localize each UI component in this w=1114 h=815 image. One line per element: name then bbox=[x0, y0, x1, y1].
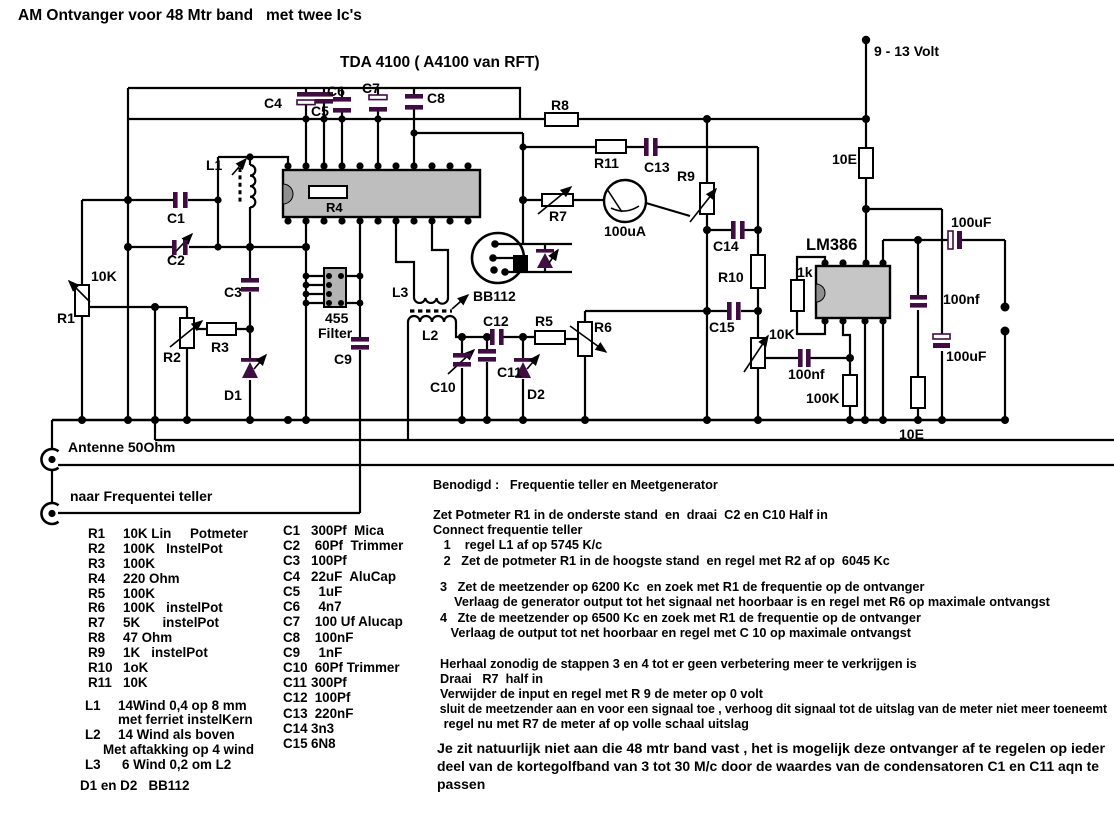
svg-text:C4: C4 bbox=[283, 569, 301, 584]
freq-counter-label: naar Frequentei teller bbox=[70, 488, 213, 504]
diode-d1 bbox=[241, 355, 266, 378]
svg-text:regel nu met R7 de meter af op: regel nu met R7 de meter af op volle sch… bbox=[433, 717, 749, 731]
cap-c6 bbox=[333, 97, 351, 113]
svg-text:10K: 10K bbox=[123, 675, 148, 690]
resistor-1k bbox=[791, 280, 804, 311]
parts-list-resistors: R110K Lin Potmeter R2100K InstelPot R310… bbox=[88, 526, 249, 690]
svg-text:L1: L1 bbox=[85, 698, 101, 713]
svg-text:C10: C10 bbox=[283, 660, 308, 675]
label-c12: C12 bbox=[483, 313, 509, 329]
coil-l3 bbox=[410, 298, 452, 311]
svg-text:met ferriet instelKern: met ferriet instelKern bbox=[118, 712, 253, 727]
svg-text:1 regel L1 af op 5745 K/c: 1 regel L1 af op 5745 K/c bbox=[433, 538, 602, 552]
resistor-r10 bbox=[751, 255, 765, 288]
label-c14: C14 bbox=[713, 238, 739, 254]
svg-text:C2: C2 bbox=[283, 538, 300, 553]
page-title: AM Ontvanger voor 48 Mtr band met twee I… bbox=[18, 7, 362, 24]
svg-text:R7: R7 bbox=[88, 615, 105, 630]
svg-text:100K: 100K bbox=[123, 586, 155, 601]
cap-c3 bbox=[241, 278, 259, 292]
svg-text:L3: L3 bbox=[85, 757, 101, 772]
varicap-bb112-symbol bbox=[472, 233, 558, 283]
label-l3: L3 bbox=[392, 284, 409, 300]
value-10e-bottom: 10E bbox=[899, 426, 924, 442]
svg-text:C11: C11 bbox=[283, 675, 307, 690]
svg-text:C1: C1 bbox=[283, 523, 301, 538]
cap-c10 bbox=[453, 353, 471, 367]
label-r8: R8 bbox=[551, 97, 569, 113]
svg-text:C9: C9 bbox=[283, 645, 300, 660]
ic1-title: TDA 4100 ( A4100 van RFT) bbox=[340, 54, 540, 71]
label-c4: C4 bbox=[264, 95, 282, 111]
svg-text:14Wind 0,4 op 8 mm: 14Wind 0,4 op 8 mm bbox=[118, 698, 247, 713]
svg-text:100Pf: 100Pf bbox=[311, 553, 347, 568]
svg-text:100K InstelPot: 100K InstelPot bbox=[123, 541, 223, 556]
svg-text:Connect frequentie teller: Connect frequentie teller bbox=[433, 523, 583, 537]
svg-text:Met aftakking op 4 wind: Met aftakking op 4 wind bbox=[103, 742, 254, 757]
supply-label: 9 - 13 Volt bbox=[874, 43, 939, 59]
svg-text:Herhaal zonodig de stappen 3 e: Herhaal zonodig de stappen 3 en 4 tot er… bbox=[433, 657, 917, 671]
svg-text:C15: C15 bbox=[283, 736, 308, 751]
svg-text:2 Zet de potmeter R1 in de h: 2 Zet de potmeter R1 in de hoogste stand… bbox=[433, 554, 890, 568]
value-r1: 10K bbox=[91, 268, 117, 284]
label-c1: C1 bbox=[167, 210, 185, 226]
cap-c14 bbox=[731, 221, 745, 239]
label-c7: C7 bbox=[362, 80, 380, 96]
label-r6: R6 bbox=[594, 319, 612, 335]
cap-c9 bbox=[351, 337, 369, 350]
instructions-heading: Benodigd : Frequentie teller en Meetgene… bbox=[433, 478, 718, 492]
svg-text:100 Uf Alucap: 100 Uf Alucap bbox=[311, 614, 403, 629]
svg-text:1uF: 1uF bbox=[311, 584, 342, 599]
value-pot10k: 10K bbox=[769, 326, 795, 342]
value-100k: 100K bbox=[806, 390, 839, 406]
cap-c7 bbox=[369, 95, 387, 112]
svg-text:C6: C6 bbox=[283, 599, 300, 614]
footer-line: passen bbox=[437, 776, 485, 792]
svg-text:100nF: 100nF bbox=[311, 630, 353, 645]
cap-100nf-left bbox=[798, 349, 811, 367]
value-100uf-top: 100uF bbox=[951, 214, 992, 230]
svg-text:220 Ohm: 220 Ohm bbox=[123, 571, 180, 586]
label-c8: C8 bbox=[427, 90, 445, 106]
label-bb112: BB112 bbox=[473, 288, 516, 304]
svg-text:100K: 100K bbox=[123, 556, 155, 571]
svg-text:3 Zet de meetzender op 6200: 3 Zet de meetzender op 6200 Kc en zoek m… bbox=[433, 580, 924, 594]
value-10e-top: 10E bbox=[832, 151, 857, 167]
label-c9: C9 bbox=[334, 351, 352, 367]
coil-l2 bbox=[408, 316, 456, 322]
label-c10: C10 bbox=[430, 379, 456, 395]
svg-text:Draai R7 half in: Draai R7 half in bbox=[433, 672, 543, 686]
antenna-label: Antenne 50Ohm bbox=[68, 439, 175, 455]
cap-c12 bbox=[490, 329, 504, 345]
label-r11: R11 bbox=[594, 155, 619, 171]
label-r7: R7 bbox=[549, 208, 567, 224]
instructions-block: Benodigd : Frequentie teller en Meetgene… bbox=[433, 478, 1108, 792]
svg-text:R6: R6 bbox=[88, 600, 105, 615]
svg-text:R4: R4 bbox=[88, 571, 106, 586]
label-c11: C11 bbox=[497, 364, 522, 380]
label-l1: L1 bbox=[206, 157, 223, 173]
cap-100uf-top bbox=[948, 231, 962, 249]
value-100uf-bottom: 100uF bbox=[946, 348, 987, 364]
ic-lm386 bbox=[816, 259, 890, 324]
svg-text:C7: C7 bbox=[283, 614, 300, 629]
svg-text:300Pf Mica: 300Pf Mica bbox=[311, 523, 384, 538]
label-r1: R1 bbox=[57, 310, 75, 326]
label-r10: R10 bbox=[718, 269, 744, 285]
svg-text:1nF: 1nF bbox=[311, 645, 342, 660]
svg-text:R5: R5 bbox=[88, 586, 106, 601]
svg-text:Zet Potmeter R1 in de onderste: Zet Potmeter R1 in de onderste stand en … bbox=[433, 508, 828, 522]
cap-c13 bbox=[644, 138, 658, 156]
cap-c8 bbox=[405, 94, 423, 110]
schematic-page: AM Ontvanger voor 48 Mtr band met twee I… bbox=[0, 0, 1114, 815]
label-meter: 100uA bbox=[604, 223, 646, 239]
svg-text:60Pf Trimmer: 60Pf Trimmer bbox=[311, 660, 400, 675]
resistor-r8 bbox=[545, 113, 578, 126]
cap-c15 bbox=[727, 302, 741, 320]
svg-text:D1 en D2 BB112: D1 en D2 BB112 bbox=[80, 778, 189, 793]
label-l2: L2 bbox=[422, 327, 439, 343]
parts-list-capacitors: C1300Pf Mica C2 60Pf Trimmer C3100Pf C42… bbox=[283, 523, 404, 751]
wire-network bbox=[52, 40, 1114, 513]
svg-text:R2: R2 bbox=[88, 541, 105, 556]
resistor-10e-top bbox=[859, 148, 873, 178]
svg-text:1oK: 1oK bbox=[123, 660, 149, 675]
coil-l1 bbox=[240, 165, 255, 207]
svg-text:47 Ohm: 47 Ohm bbox=[123, 630, 172, 645]
svg-text:sluit de meetzender aan en voo: sluit de meetzender aan en voor een sign… bbox=[433, 702, 1108, 716]
filter-455 bbox=[324, 268, 346, 307]
resistor-r5 bbox=[535, 331, 565, 344]
resistor-r6 bbox=[578, 322, 592, 356]
svg-text:R1: R1 bbox=[88, 526, 106, 541]
label-filter-455: 455 bbox=[325, 310, 349, 326]
svg-text:100Pf: 100Pf bbox=[311, 690, 351, 705]
resistor-r9 bbox=[700, 183, 714, 214]
resistor-r7 bbox=[542, 194, 573, 206]
value-100nf-left: 100nf bbox=[788, 366, 825, 382]
label-r2: R2 bbox=[163, 349, 181, 365]
label-c2: C2 bbox=[167, 252, 185, 268]
resistor-10e-bottom bbox=[911, 377, 925, 408]
svg-text:C5: C5 bbox=[283, 584, 301, 599]
svg-text:300Pf: 300Pf bbox=[311, 675, 347, 690]
value-1k: 1k bbox=[797, 264, 813, 280]
label-r5: R5 bbox=[535, 313, 553, 329]
value-100nf-right: 100nf bbox=[943, 291, 980, 307]
ic-tda4100 bbox=[283, 162, 480, 224]
svg-text:6N8: 6N8 bbox=[311, 736, 336, 751]
label-c3: C3 bbox=[224, 284, 242, 300]
ic2-title: LM386 bbox=[806, 236, 857, 254]
label-d1: D1 bbox=[224, 387, 242, 403]
footer-line: Je zit natuurlijk niet aan die 48 mtr ba… bbox=[437, 740, 1106, 756]
label-c6: C6 bbox=[327, 83, 345, 99]
svg-text:10K Lin Potmeter: 10K Lin Potmeter bbox=[123, 526, 249, 541]
freq-counter-connector bbox=[41, 503, 58, 524]
label-r9: R9 bbox=[677, 168, 695, 184]
svg-text:L2: L2 bbox=[85, 727, 101, 742]
svg-text:3n3: 3n3 bbox=[311, 721, 334, 736]
svg-text:C3: C3 bbox=[283, 553, 300, 568]
svg-text:C14: C14 bbox=[283, 721, 308, 736]
svg-text:100K instelPot: 100K instelPot bbox=[123, 600, 223, 615]
svg-text:4 Zte de meetzender op 6500: 4 Zte de meetzender op 6500 Kc en zoek m… bbox=[433, 611, 921, 625]
svg-text:R9: R9 bbox=[88, 645, 105, 660]
label-filter-word: Filter bbox=[318, 325, 353, 341]
label-d2: D2 bbox=[527, 386, 545, 402]
svg-text:C13: C13 bbox=[283, 706, 308, 721]
svg-text:R3: R3 bbox=[88, 556, 105, 571]
parts-list-coils: L114Wind 0,4 op 8 mm met ferriet instelK… bbox=[80, 698, 254, 793]
meter-100ua bbox=[604, 180, 646, 222]
svg-text:6 Wind 0,2 om L2: 6 Wind 0,2 om L2 bbox=[122, 757, 231, 772]
label-r3: R3 bbox=[211, 339, 229, 355]
resistor-r3 bbox=[207, 323, 236, 335]
svg-text:R8: R8 bbox=[88, 630, 106, 645]
cap-100nf-right bbox=[910, 295, 927, 308]
svg-text:220nF: 220nF bbox=[311, 706, 353, 721]
cap-c1 bbox=[173, 192, 188, 208]
cap-c11 bbox=[478, 349, 496, 362]
svg-text:5K instelPot: 5K instelPot bbox=[123, 615, 220, 630]
svg-text:60Pf Trimmer: 60Pf Trimmer bbox=[311, 538, 404, 553]
svg-text:R11: R11 bbox=[88, 675, 112, 690]
label-c13: C13 bbox=[644, 159, 670, 175]
resistor-r11 bbox=[596, 140, 626, 153]
label-c15: C15 bbox=[709, 319, 735, 335]
label-c5: C5 bbox=[311, 103, 329, 119]
svg-text:14 Wind als boven: 14 Wind als boven bbox=[118, 727, 235, 742]
svg-text:R10: R10 bbox=[88, 660, 113, 675]
svg-text:C8: C8 bbox=[283, 630, 301, 645]
cap-100uf-bottom bbox=[933, 334, 950, 348]
footer-line: deel van de kortegolfband van 3 tot 30 M… bbox=[437, 758, 1099, 774]
label-r4: R4 bbox=[326, 200, 343, 215]
svg-text:Verwijder de input en regel me: Verwijder de input en regel met R 9 de m… bbox=[433, 687, 764, 701]
svg-text:Verlaag de output tot net hoor: Verlaag de output tot net hoorbaar en re… bbox=[433, 626, 912, 640]
svg-text:Verlaag de generator output to: Verlaag de generator output tot het sign… bbox=[433, 595, 1051, 609]
resistor-r4 bbox=[309, 186, 347, 198]
schematic-canvas: AM Ontvanger voor 48 Mtr band met twee I… bbox=[0, 0, 1114, 815]
svg-text:C12: C12 bbox=[283, 690, 308, 705]
svg-text:1K instelPot: 1K instelPot bbox=[123, 645, 208, 660]
svg-text:4n7: 4n7 bbox=[311, 599, 342, 614]
svg-text:22uF AluCap: 22uF AluCap bbox=[311, 569, 396, 584]
antenna-connector bbox=[41, 449, 58, 470]
resistor-100k bbox=[843, 375, 857, 406]
